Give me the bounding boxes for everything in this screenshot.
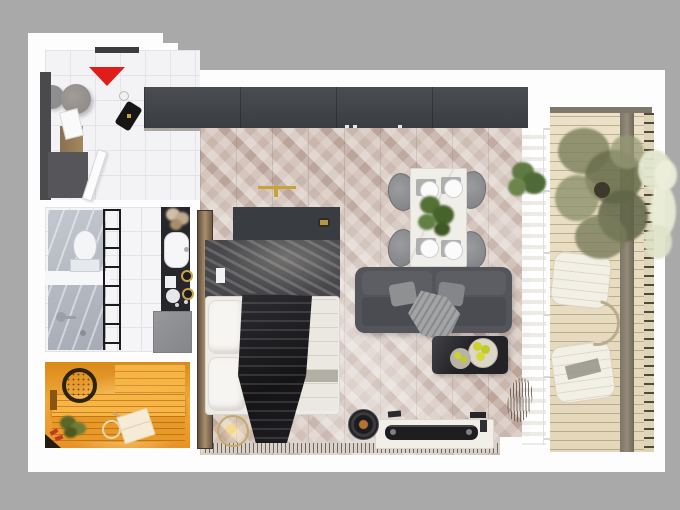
toiletry (184, 300, 188, 304)
media-device (470, 412, 486, 418)
washing-machine (153, 311, 192, 353)
olive-tree-foliage (575, 215, 627, 259)
round-speaker (348, 409, 379, 440)
green-plant (508, 178, 526, 196)
entrance-direction-triangle (89, 67, 125, 86)
toiletry (175, 303, 179, 307)
fruit (460, 356, 467, 363)
sofa-pillow (388, 281, 417, 307)
toilet-tank (70, 259, 100, 272)
dinner-plate (444, 241, 463, 260)
floorplan-render (0, 0, 680, 510)
tv-speaker-dot (466, 429, 472, 435)
dinner-plate (444, 179, 463, 198)
faucet (184, 247, 189, 252)
olive-tree-foliage (555, 175, 599, 221)
dinner-plate (420, 239, 439, 258)
bag-clasp (127, 114, 131, 118)
fruit (476, 352, 485, 361)
cup (119, 91, 129, 101)
tv-screen (385, 425, 478, 440)
lamp-bulb (226, 424, 236, 434)
entrance-door (95, 47, 139, 53)
gold-emblem (318, 218, 330, 227)
tree-pot (594, 182, 610, 198)
shower-arm (64, 316, 76, 319)
towel-ladder-rack (103, 209, 121, 350)
toilet (73, 230, 97, 262)
remote-control (388, 410, 401, 417)
book-on-dresser (216, 268, 225, 283)
sauna-bucket (62, 368, 97, 403)
overhanging-pale-foliage (655, 160, 677, 190)
vanity-flowers (170, 219, 182, 230)
sauna-door-handle (50, 390, 57, 410)
vanity-tray (165, 276, 176, 288)
cosmetic-jar (181, 270, 193, 282)
brass-valet-stem (274, 189, 278, 197)
sauna-upper-bench (115, 364, 185, 394)
sauna-whisk (64, 427, 77, 438)
media-device (480, 420, 487, 432)
dresser-with-clothes (205, 240, 340, 300)
overhanging-pale-foliage (644, 225, 672, 259)
tv-speaker-dot (390, 429, 396, 435)
balcony-top-edge (550, 107, 652, 113)
shower-drain (80, 330, 86, 336)
bathroom-partition-shelf (45, 271, 110, 285)
centerpiece-plant (434, 222, 450, 236)
vanity-plate (166, 289, 180, 303)
cosmetic-jar (182, 288, 194, 300)
green-plant (522, 172, 546, 194)
built-in-wardrobe (144, 87, 528, 131)
entry-cabinet (48, 152, 88, 198)
